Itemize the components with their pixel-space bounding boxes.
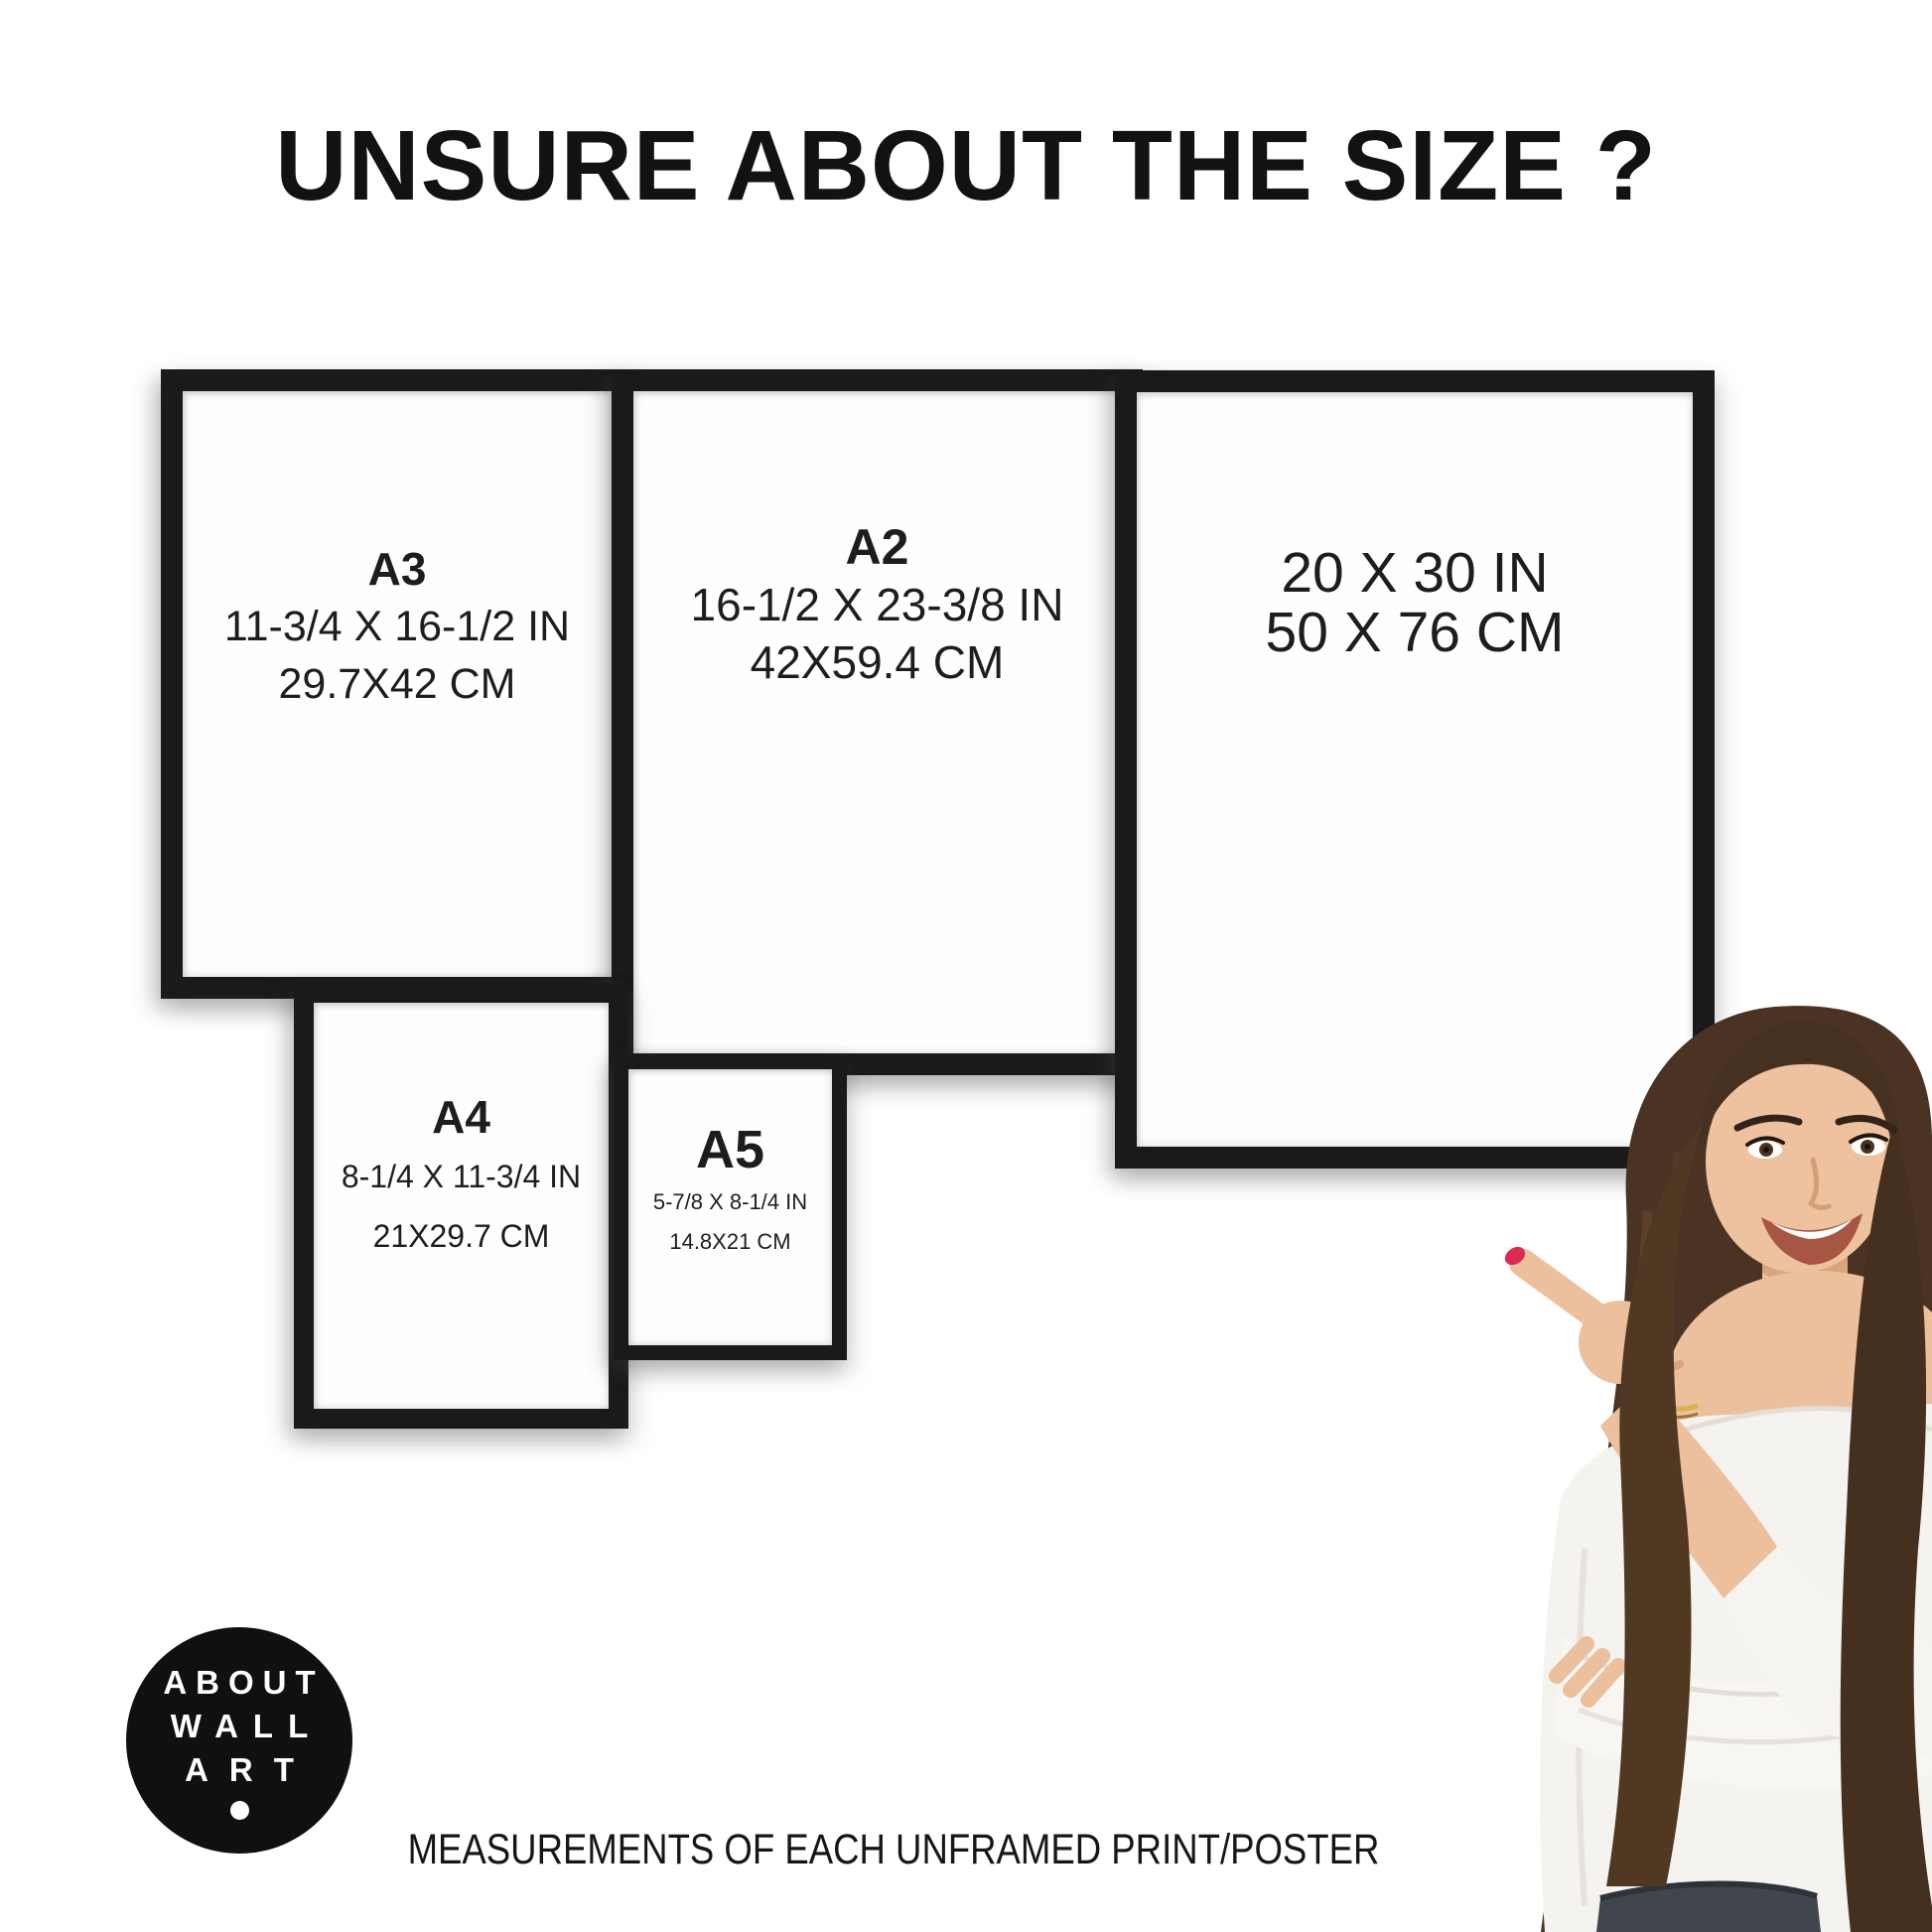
page-title: UNSURE ABOUT THE SIZE ? bbox=[0, 111, 1932, 220]
size-inches: 16-1/2 X 23-3/8 IN bbox=[633, 576, 1121, 633]
size-label: A4 bbox=[314, 1087, 609, 1147]
size-inches: 20 X 30 IN bbox=[1137, 543, 1693, 603]
measurements-caption: MEASUREMENTS OF EACH UNFRAMED PRINT/POST… bbox=[303, 1825, 1484, 1874]
size-label: A3 bbox=[183, 540, 612, 598]
size-label: A2 bbox=[633, 518, 1121, 576]
frame-a5-size-text: A5 5-7/8 X 8-1/4 IN 14.8X21 CM bbox=[628, 1117, 832, 1262]
presenter-photo bbox=[1350, 993, 1932, 1932]
pointing-finger bbox=[1523, 1263, 1610, 1326]
logo-dot-icon bbox=[230, 1801, 249, 1820]
frame-a2-size-text: A2 16-1/2 X 23-3/8 IN 42X59.4 CM bbox=[633, 518, 1121, 691]
size-label: A5 bbox=[628, 1117, 832, 1182]
size-cm: 14.8X21 CM bbox=[628, 1222, 832, 1262]
frame-a4-size-text: A4 8-1/4 X 11-3/4 IN 21X29.7 CM bbox=[314, 1087, 609, 1266]
brand-logo-line: ABOUT bbox=[154, 1661, 324, 1705]
size-inches: 11-3/4 X 16-1/2 IN bbox=[183, 598, 612, 655]
brand-logo-line: ART bbox=[164, 1748, 315, 1792]
frame-a4: A4 8-1/4 X 11-3/4 IN 21X29.7 CM bbox=[294, 983, 628, 1429]
size-inches: 8-1/4 X 11-3/4 IN bbox=[314, 1147, 609, 1206]
size-cm: 29.7X42 CM bbox=[183, 655, 612, 713]
brand-logo-line: WALL bbox=[156, 1705, 323, 1748]
frame-a3-size-text: A3 11-3/4 X 16-1/2 IN 29.7X42 CM bbox=[183, 540, 612, 713]
frame-a5: A5 5-7/8 X 8-1/4 IN 14.8X21 CM bbox=[614, 1054, 847, 1360]
frame-a2: A2 16-1/2 X 23-3/8 IN 42X59.4 CM bbox=[612, 369, 1143, 1075]
size-cm: 42X59.4 CM bbox=[633, 633, 1121, 691]
frame-20x30-size-text: 20 X 30 IN 50 X 76 CM bbox=[1137, 543, 1693, 662]
size-cm: 21X29.7 CM bbox=[314, 1206, 609, 1266]
size-cm: 50 X 76 CM bbox=[1137, 603, 1693, 662]
frame-a3: A3 11-3/4 X 16-1/2 IN 29.7X42 CM bbox=[161, 369, 633, 999]
size-guide-infographic: UNSURE ABOUT THE SIZE ? A3 11-3/4 X 16-1… bbox=[0, 0, 1932, 1932]
size-inches: 5-7/8 X 8-1/4 IN bbox=[628, 1182, 832, 1222]
brand-logo: ABOUT WALL ART bbox=[126, 1627, 352, 1854]
